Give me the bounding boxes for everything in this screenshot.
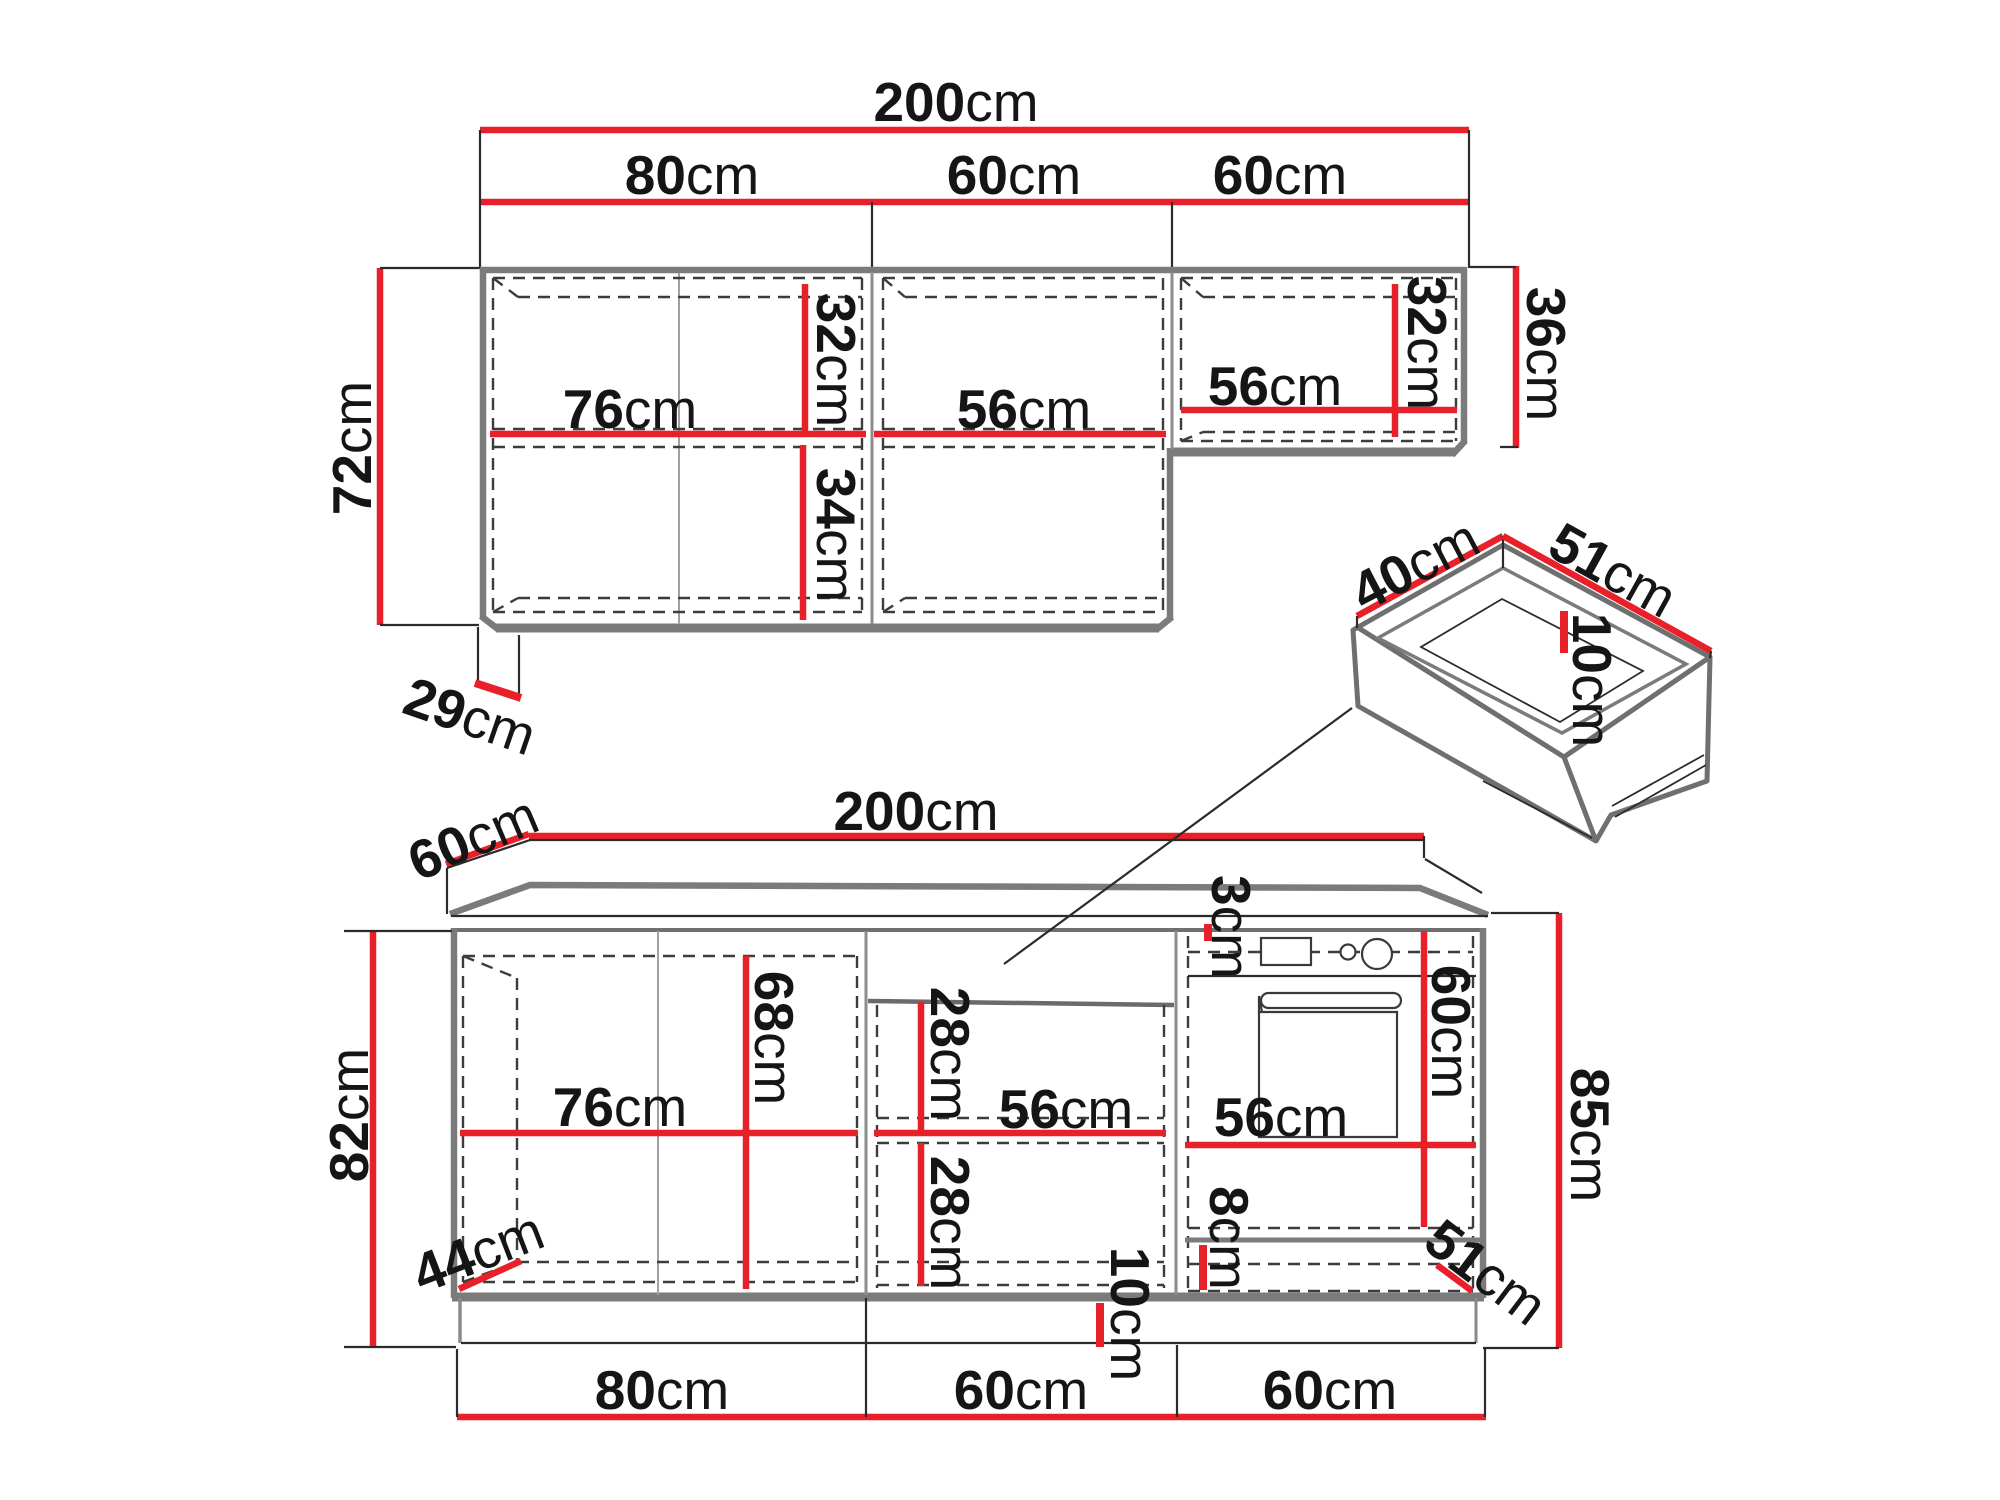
svg-text:36cm: 36cm <box>1515 287 1577 422</box>
svg-text:10cm: 10cm <box>1561 613 1623 748</box>
svg-text:85cm: 85cm <box>1559 1068 1621 1203</box>
svg-text:76cm: 76cm <box>563 378 698 440</box>
svg-text:60cm: 60cm <box>1213 144 1348 206</box>
svg-text:56cm: 56cm <box>1214 1086 1349 1148</box>
svg-text:56cm: 56cm <box>957 378 1092 440</box>
svg-text:34cm: 34cm <box>805 468 867 603</box>
svg-text:80cm: 80cm <box>625 144 760 206</box>
svg-text:10cm: 10cm <box>1099 1247 1161 1382</box>
svg-text:32cm: 32cm <box>1396 276 1458 411</box>
svg-text:76cm: 76cm <box>553 1076 688 1138</box>
svg-text:60cm: 60cm <box>947 144 1082 206</box>
svg-text:82cm: 82cm <box>318 1048 380 1183</box>
svg-text:28cm: 28cm <box>919 1156 981 1291</box>
svg-text:200cm: 200cm <box>833 780 998 842</box>
svg-text:56cm: 56cm <box>1208 355 1343 417</box>
svg-text:56cm: 56cm <box>999 1078 1134 1140</box>
svg-text:60cm: 60cm <box>1420 965 1482 1100</box>
svg-text:60cm: 60cm <box>1263 1359 1398 1421</box>
svg-text:8cm: 8cm <box>1198 1186 1260 1290</box>
svg-text:200cm: 200cm <box>873 71 1038 133</box>
svg-text:3cm: 3cm <box>1200 875 1262 979</box>
svg-text:72cm: 72cm <box>321 381 383 516</box>
svg-text:32cm: 32cm <box>805 293 867 428</box>
svg-text:60cm: 60cm <box>954 1359 1089 1421</box>
svg-text:80cm: 80cm <box>595 1359 730 1421</box>
svg-text:28cm: 28cm <box>919 987 981 1122</box>
svg-text:68cm: 68cm <box>743 971 805 1106</box>
